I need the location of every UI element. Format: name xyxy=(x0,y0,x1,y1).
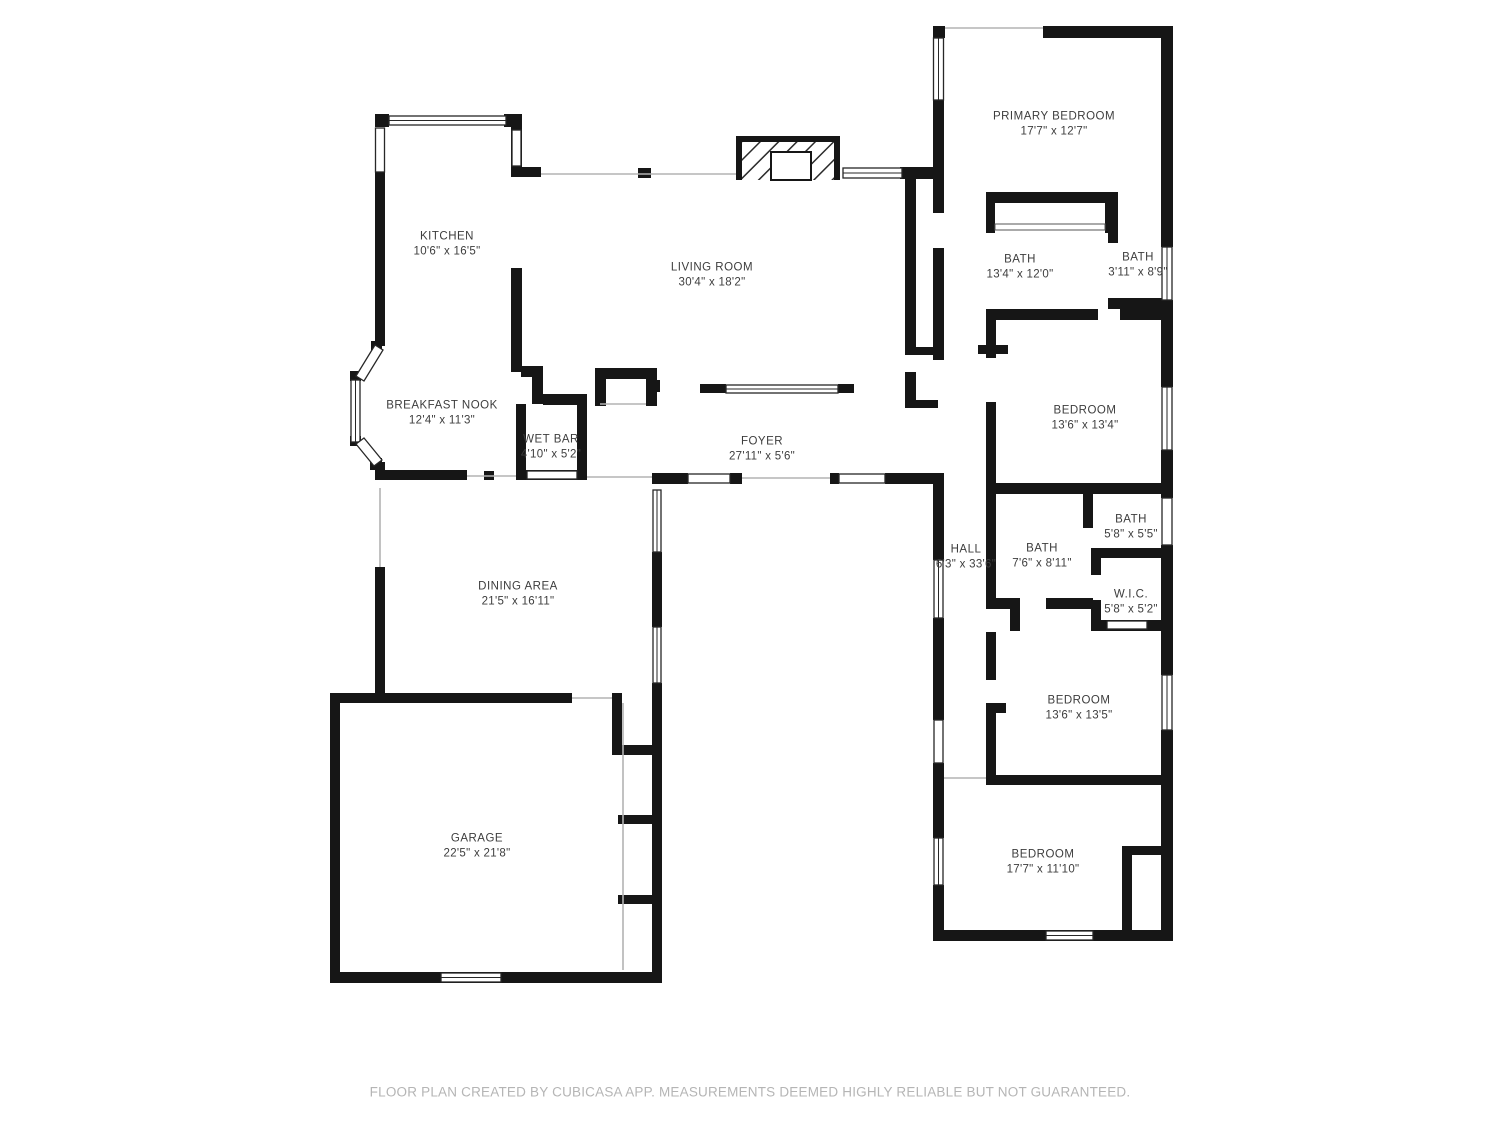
room-dims: 6'3" x 33'6" xyxy=(936,558,996,573)
window-symbol xyxy=(512,130,521,166)
bay-window-symbol xyxy=(356,438,382,466)
window-symbol xyxy=(688,474,730,483)
room-label-garage: GARAGE 22'5" x 21'8" xyxy=(444,831,511,862)
room-name: BEDROOM xyxy=(1052,403,1119,419)
room-label-bath-primary-2: BATH 3'11" x 8'9" xyxy=(1108,250,1167,281)
footer-disclaimer: FLOOR PLAN CREATED BY CUBICASA APP. MEAS… xyxy=(370,1085,1131,1100)
room-name: GARAGE xyxy=(444,831,511,847)
room-label-foyer: FOYER 27'11" x 5'6" xyxy=(729,434,795,465)
room-dims: 7'6" x 8'11" xyxy=(1012,557,1071,572)
room-label-bedroom-e: BEDROOM 13'6" x 13'5" xyxy=(1046,693,1113,724)
room-dims: 5'8" x 5'2" xyxy=(1104,603,1158,618)
room-name: FOYER xyxy=(729,434,795,450)
window-symbol xyxy=(376,128,385,172)
room-label-bedroom-se: BEDROOM 17'7" x 11'10" xyxy=(1007,847,1080,878)
room-name: BATH xyxy=(1104,512,1158,528)
window-symbol xyxy=(934,720,943,763)
room-dims: 13'4" x 12'0" xyxy=(987,268,1054,283)
room-name: BEDROOM xyxy=(1046,693,1113,709)
room-name: DINING AREA xyxy=(478,579,558,595)
room-dims: 17'7" x 11'10" xyxy=(1007,863,1080,878)
room-label-breakfast-nook: BREAKFAST NOOK 12'4" x 11'3" xyxy=(386,398,498,429)
room-dims: 22'5" x 21'8" xyxy=(444,847,511,862)
room-label-primary-bedroom: PRIMARY BEDROOM 17'7" x 12'7" xyxy=(993,109,1115,140)
room-dims: 10'6" x 16'5" xyxy=(414,245,481,260)
window-symbol xyxy=(1107,621,1147,629)
floor-plan-svg xyxy=(0,0,1500,1125)
floor-plan: KITCHEN 10'6" x 16'5" LIVING ROOM 30'4" … xyxy=(0,0,1500,1125)
room-label-kitchen: KITCHEN 10'6" x 16'5" xyxy=(414,229,481,260)
window-symbol xyxy=(839,474,885,483)
window-symbol xyxy=(527,471,577,479)
fireplace-symbol xyxy=(736,136,840,180)
room-name: LIVING ROOM xyxy=(671,260,753,276)
room-label-living-room: LIVING ROOM 30'4" x 18'2" xyxy=(671,260,753,291)
room-dims: 27'11" x 5'6" xyxy=(729,450,795,465)
room-name: W.I.C. xyxy=(1104,587,1158,603)
window-symbol xyxy=(1162,498,1172,545)
room-dims: 5'8" x 5'5" xyxy=(1104,528,1158,543)
room-name: BEDROOM xyxy=(1007,847,1080,863)
room-dims: 13'6" x 13'5" xyxy=(1046,709,1113,724)
room-dims: 3'11" x 8'9" xyxy=(1108,266,1167,281)
room-name: BREAKFAST NOOK xyxy=(386,398,498,414)
room-dims: 30'4" x 18'2" xyxy=(671,276,753,291)
room-name: PRIMARY BEDROOM xyxy=(993,109,1115,125)
room-label-bath-small: BATH 5'8" x 5'5" xyxy=(1104,512,1158,543)
room-name: BATH xyxy=(1012,541,1071,557)
room-label-dining-area: DINING AREA 21'5" x 16'11" xyxy=(478,579,558,610)
room-name: HALL xyxy=(936,542,996,558)
room-dims: 4'10" x 5'2" xyxy=(521,448,581,463)
room-label-bath-primary: BATH 13'4" x 12'0" xyxy=(987,252,1054,283)
room-dims: 12'4" x 11'3" xyxy=(386,414,498,429)
room-dims: 13'6" x 13'4" xyxy=(1052,419,1119,434)
room-name: BATH xyxy=(1108,250,1167,266)
room-dims: 21'5" x 16'11" xyxy=(478,595,558,610)
room-name: BATH xyxy=(987,252,1054,268)
room-label-hall: HALL 6'3" x 33'6" xyxy=(936,542,996,573)
room-label-wic: W.I.C. 5'8" x 5'2" xyxy=(1104,587,1158,618)
room-dims: 17'7" x 12'7" xyxy=(993,125,1115,140)
room-name: KITCHEN xyxy=(414,229,481,245)
room-label-bath-hall: BATH 7'6" x 8'11" xyxy=(1012,541,1071,572)
shower-glass-symbol xyxy=(995,224,1105,230)
bay-window-symbol xyxy=(356,345,383,381)
room-name: WET BAR xyxy=(521,432,581,448)
room-label-wet-bar: WET BAR 4'10" x 5'2" xyxy=(521,432,581,463)
room-label-bedroom-ne: BEDROOM 13'6" x 13'4" xyxy=(1052,403,1119,434)
